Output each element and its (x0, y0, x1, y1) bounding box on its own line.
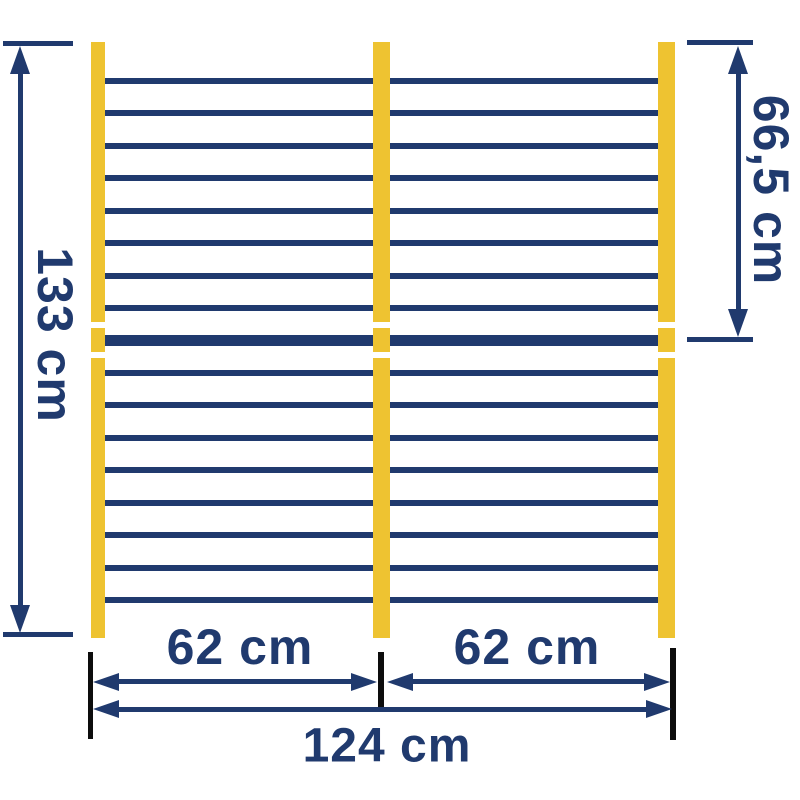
dimension-line-span-left (115, 679, 355, 684)
arrowhead-right-icon (351, 673, 377, 691)
arrowhead-left-icon (93, 700, 119, 718)
extension-tick-bottom-middle-post (378, 652, 384, 711)
dimension-label-span-left: 62 cm (167, 618, 314, 676)
arrowhead-right-icon (644, 673, 670, 691)
post-middle-bottom-segment (373, 358, 390, 638)
fence-dimension-diagram: 133 cm 66,5 cm 62 cm 62 cm 124 cm (0, 0, 800, 800)
dimension-label-span-total: 124 cm (303, 719, 472, 774)
post-left-middle-segment (91, 328, 105, 352)
extension-tick-bottom-right-post (670, 648, 676, 740)
arrowhead-right-icon (646, 700, 672, 718)
post-middle-top-segment (373, 42, 390, 322)
post-right-middle-segment (658, 328, 675, 352)
dimension-line-height-upper (736, 66, 741, 318)
dimension-line-height-total (18, 66, 23, 614)
arrowhead-up-icon (728, 46, 748, 74)
post-right-bottom-segment (658, 358, 675, 638)
dimension-line-span-total (115, 707, 648, 712)
arrowhead-down-icon (728, 309, 748, 337)
arrowhead-down-icon (10, 605, 30, 633)
dimension-label-height-total: 133 cm (26, 247, 84, 423)
dimension-label-span-right: 62 cm (454, 618, 601, 676)
arrowhead-up-icon (10, 46, 30, 74)
dimension-line-span-right (409, 679, 646, 684)
arrowhead-left-icon (93, 673, 119, 691)
post-left-bottom-segment (91, 358, 105, 638)
post-middle-middle-segment (373, 328, 390, 352)
post-left-top-segment (91, 42, 105, 322)
extension-tick-top-right (687, 40, 753, 45)
extension-tick-bottom-left-post (88, 652, 93, 739)
dimension-label-height-upper: 66,5 cm (742, 95, 800, 285)
extension-tick-middle-right (687, 337, 753, 342)
arrowhead-left-icon (387, 673, 413, 691)
post-right-top-segment (658, 42, 675, 322)
